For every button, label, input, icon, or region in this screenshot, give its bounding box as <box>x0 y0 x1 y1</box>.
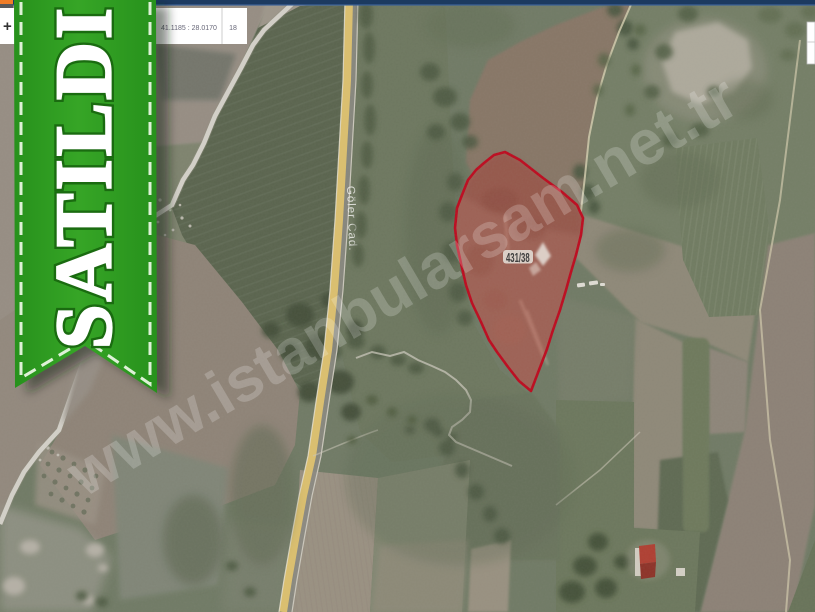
svg-text:18: 18 <box>229 25 237 32</box>
svg-text:+: + <box>3 18 12 35</box>
svg-text:41.1185 : 28.0170: 41.1185 : 28.0170 <box>161 25 217 32</box>
svg-text:SATILDI: SATILDI <box>40 5 128 349</box>
